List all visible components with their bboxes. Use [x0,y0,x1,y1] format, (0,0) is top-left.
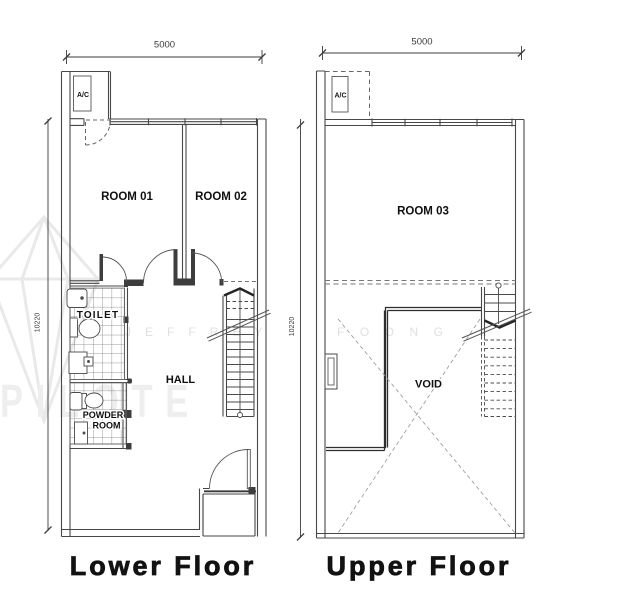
svg-text:TOILET: TOILET [77,310,120,321]
svg-text:Upper Floor: Upper Floor [327,551,512,581]
svg-text:POWDER: POWDER [83,410,124,420]
svg-text:10220: 10220 [289,317,296,337]
svg-text:5000: 5000 [154,40,175,51]
svg-text:5000: 5000 [411,37,432,48]
svg-text:ROOM 03: ROOM 03 [397,206,449,218]
svg-text:A/C: A/C [77,92,89,99]
svg-text:HALL: HALL [166,374,196,386]
svg-text:ROOM: ROOM [93,421,121,431]
svg-text:A/C: A/C [334,93,346,100]
svg-text:VOID: VOID [415,379,442,391]
svg-text:ROOM 02: ROOM 02 [195,191,247,203]
svg-text:ROOM 01: ROOM 01 [101,191,153,203]
svg-text:FOONG: FOONG [337,325,459,339]
svg-text:Lower Floor: Lower Floor [70,551,256,581]
svg-text:10220: 10220 [35,313,42,333]
